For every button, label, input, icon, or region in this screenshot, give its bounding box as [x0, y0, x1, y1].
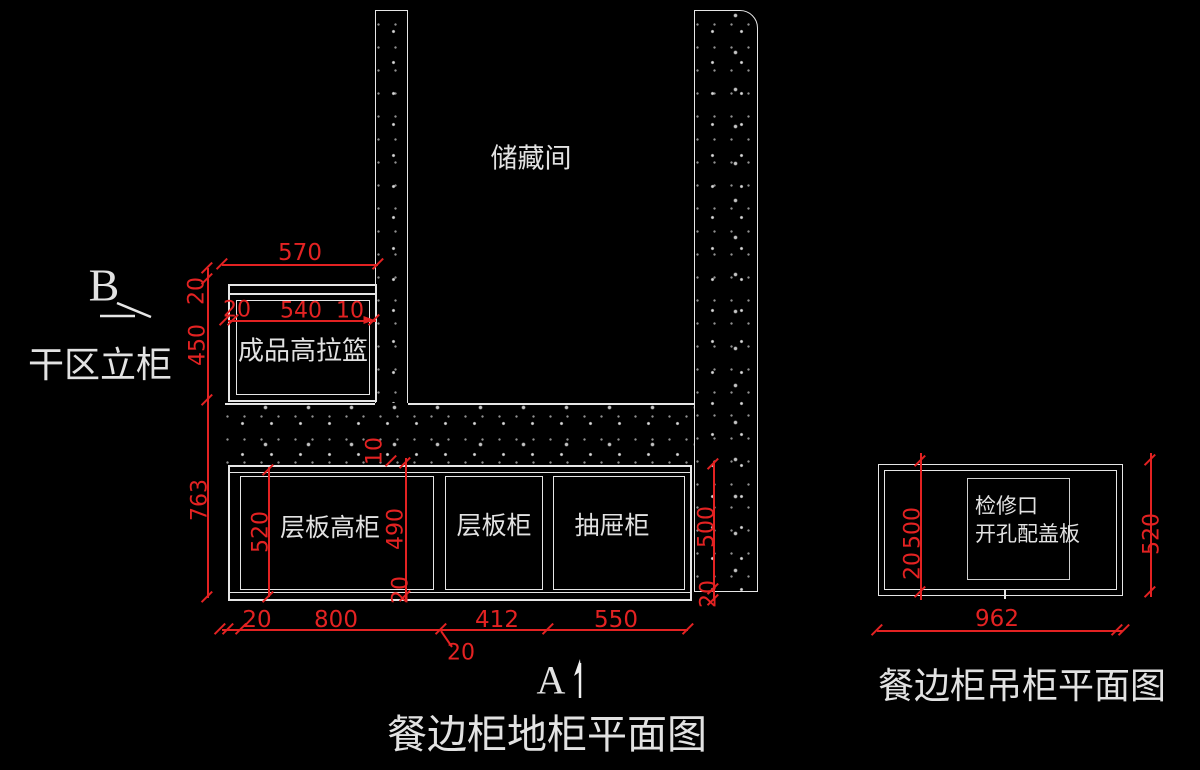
dim-text-763: 763 — [188, 479, 213, 521]
dim-text-800: 800 — [314, 607, 358, 633]
side-cabinet-label: 干区立柜 — [28, 336, 172, 388]
dim-text-bottom-20: 20 — [242, 607, 271, 633]
arrow-overlay — [0, 0, 1200, 770]
dim-text-412: 412 — [475, 607, 519, 633]
wall-cabinet-bottom-notch — [1004, 590, 1006, 599]
storage-room-label: 储藏间 — [491, 137, 572, 176]
dim-text-962: 962 — [975, 606, 1019, 632]
dim-text-490: 490 — [384, 508, 409, 550]
dim-text-wall-500: 500 — [901, 507, 926, 549]
dim-line-left-chain — [207, 268, 209, 598]
dim-text-wall-20: 20 — [901, 552, 926, 580]
dim-text-550: 550 — [594, 607, 638, 633]
back-wall-band — [225, 403, 694, 465]
shelf-label: 层板柜 — [456, 506, 531, 542]
access-port-label-line2: 开孔配盖板 — [975, 520, 1080, 548]
dim-text-10-chain: 10 — [336, 299, 364, 324]
dim-text-wall-520: 520 — [1140, 513, 1165, 555]
dim-text-540: 540 — [280, 299, 322, 324]
pull-basket-top-inner-line — [229, 293, 376, 295]
dim-text-520: 520 — [249, 511, 274, 553]
access-port-label-line1: 检修口 — [975, 492, 1080, 520]
dim-text-450: 450 — [186, 324, 211, 366]
tall-shelf-label: 层板高柜 — [280, 508, 380, 544]
dim-text-leader-20: 20 — [447, 641, 475, 666]
pull-basket-label: 成品高拉篮 — [238, 331, 368, 368]
section-marker-b: B — [89, 259, 120, 312]
section-marker-a: A — [537, 657, 566, 704]
base-cabinet-bottom-inner-line — [230, 592, 690, 593]
dim-text-20-inner: 20 — [389, 576, 414, 604]
base-cabinet-top-inner-line — [230, 472, 690, 473]
access-port-label: 检修口 开孔配盖板 — [975, 492, 1080, 548]
dim-arrow-right — [364, 316, 375, 324]
storage-right-wall — [694, 10, 758, 592]
back-wall-top-line-left — [225, 403, 375, 405]
section-a-arrowhead-icon — [574, 659, 581, 676]
dim-text-20-chain: 20 — [223, 298, 251, 323]
dim-text-20-right: 20 — [697, 580, 722, 608]
cad-canvas: 成品高拉篮 层板高柜 层板柜 抽屉柜 储藏间 检修口 开孔配盖板 — [0, 0, 1200, 770]
dim-text-500: 500 — [695, 506, 720, 548]
base-plan-title: 餐边柜地柜平面图 — [387, 702, 707, 760]
dim-text-left-20: 20 — [185, 277, 210, 305]
drawer-label: 抽屉柜 — [574, 506, 649, 542]
dim-text-10-inner: 10 — [363, 437, 388, 465]
back-wall-top-line-right — [408, 403, 694, 405]
wall-plan-title: 餐边柜吊柜平面图 — [878, 657, 1166, 709]
dim-text-570: 570 — [278, 240, 322, 266]
storage-left-wall — [375, 10, 408, 403]
